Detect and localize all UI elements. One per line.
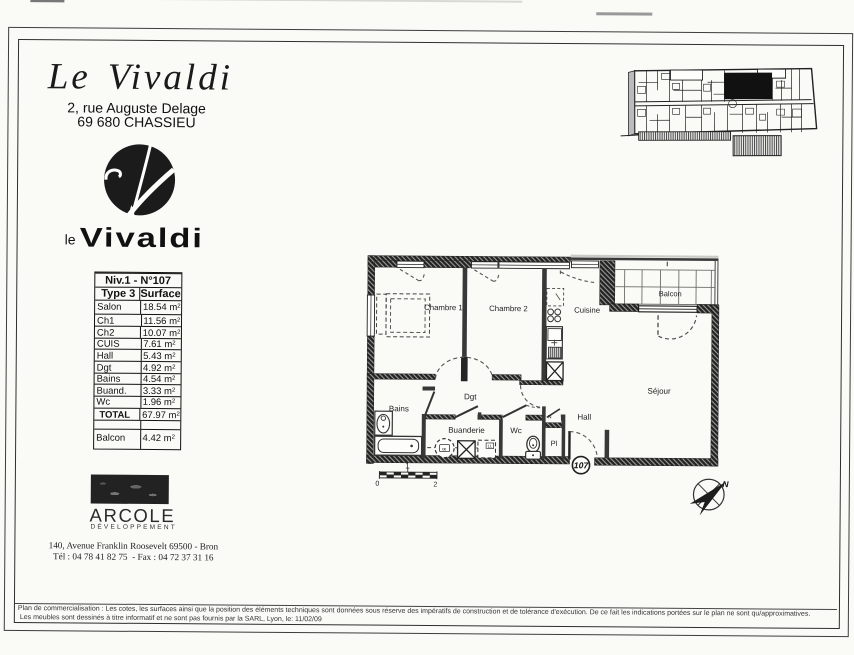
svg-text:Wc: Wc xyxy=(510,426,522,435)
svg-text:Cuisine: Cuisine xyxy=(574,306,600,315)
svg-text:Bains: Bains xyxy=(389,404,409,413)
svg-text:Séjour: Séjour xyxy=(647,387,671,396)
svg-text:Dgt: Dgt xyxy=(464,392,477,401)
svg-text:LL: LL xyxy=(488,443,493,448)
svg-text:Chambre 2: Chambre 2 xyxy=(489,304,528,313)
svg-text:2: 2 xyxy=(433,482,437,489)
svg-text:0: 0 xyxy=(375,481,379,488)
svg-text:1: 1 xyxy=(405,461,410,470)
svg-text:Hall: Hall xyxy=(577,413,591,422)
svg-text:107: 107 xyxy=(574,460,590,470)
svg-text:Balcon: Balcon xyxy=(659,289,682,298)
svg-text:Buanderie: Buanderie xyxy=(448,426,485,435)
svg-text:Pl: Pl xyxy=(551,439,558,448)
svg-text:Chambre 1: Chambre 1 xyxy=(424,303,463,312)
svg-text:N: N xyxy=(548,414,552,420)
svg-text:N: N xyxy=(722,479,729,489)
